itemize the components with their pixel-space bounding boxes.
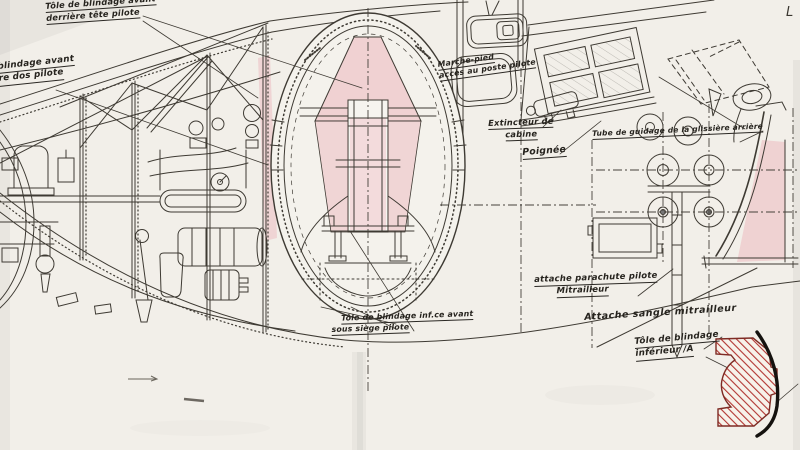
label-line: cabine <box>505 128 537 141</box>
fuselage-cutaway-drawing <box>0 0 800 450</box>
ammo-box <box>588 218 662 258</box>
label-parachute-attachment: attache parachute pilote Mitrailleur <box>534 271 658 299</box>
cockpit-equipment <box>8 105 267 323</box>
label-line: L <box>786 5 793 20</box>
lower-armor-section <box>716 332 778 436</box>
label-cabin-extinguisher: Extincteur de cabine <box>488 116 554 142</box>
label-line: Mitrailleur <box>556 284 609 298</box>
scanned-aircraft-blueprint: Tôle de blindage avant derrière tête pil… <box>0 0 800 450</box>
hatch-projection-dashed <box>668 40 769 104</box>
armor-strip-rear-bulkhead <box>737 140 785 262</box>
top-hatch <box>466 13 528 48</box>
label-corner-mark: L <box>786 5 793 22</box>
scan-artifacts <box>128 60 800 450</box>
